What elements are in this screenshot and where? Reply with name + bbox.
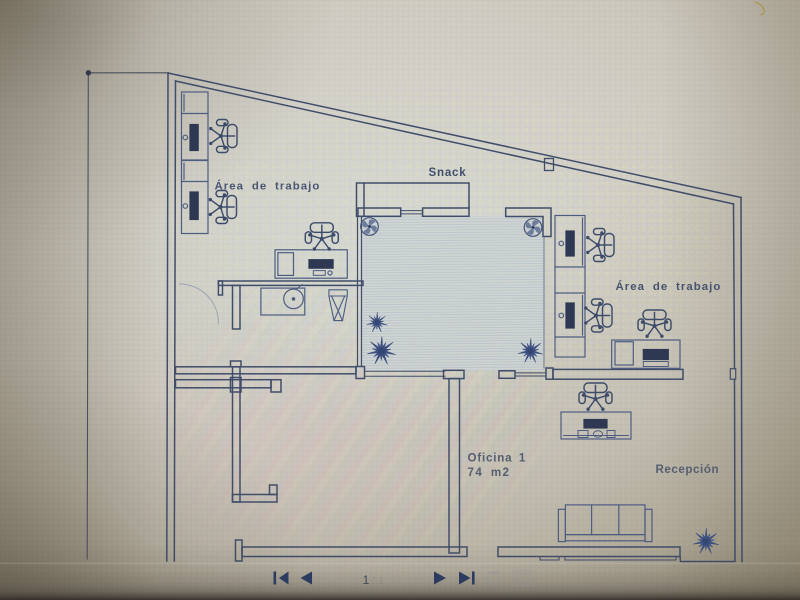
svg-text:Recepción: Recepción: [656, 463, 720, 476]
svg-text:1: 1: [363, 573, 370, 587]
svg-text:/ 1: / 1: [372, 575, 384, 587]
svg-text:Área de trabajo: Área de trabajo: [616, 280, 722, 293]
svg-text:74 m2: 74 m2: [468, 466, 511, 479]
svg-text:Snack: Snack: [429, 166, 467, 179]
svg-text:Oficina 1: Oficina 1: [468, 452, 527, 465]
svg-text:Área de trabajo: Área de trabajo: [215, 180, 321, 193]
